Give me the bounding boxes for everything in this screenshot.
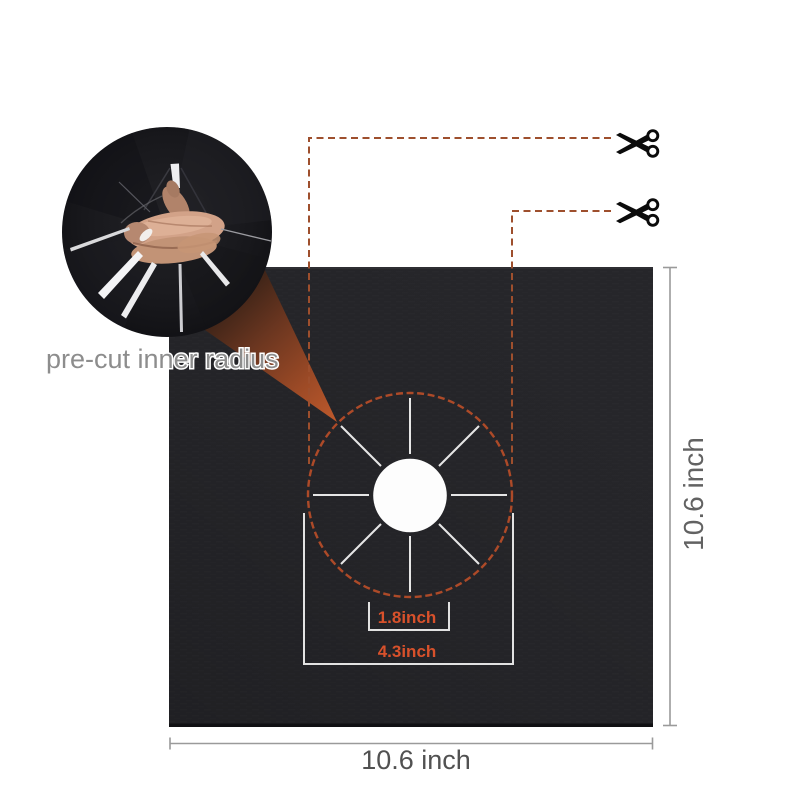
svg-text:pre-cut inner radius: pre-cut inner radius [46, 344, 279, 374]
svg-text:10.6 inch: 10.6 inch [361, 745, 471, 775]
svg-text:4.3inch: 4.3inch [378, 642, 437, 661]
svg-text:1.8inch: 1.8inch [378, 608, 437, 627]
svg-text:10.6 inch: 10.6 inch [678, 437, 709, 551]
